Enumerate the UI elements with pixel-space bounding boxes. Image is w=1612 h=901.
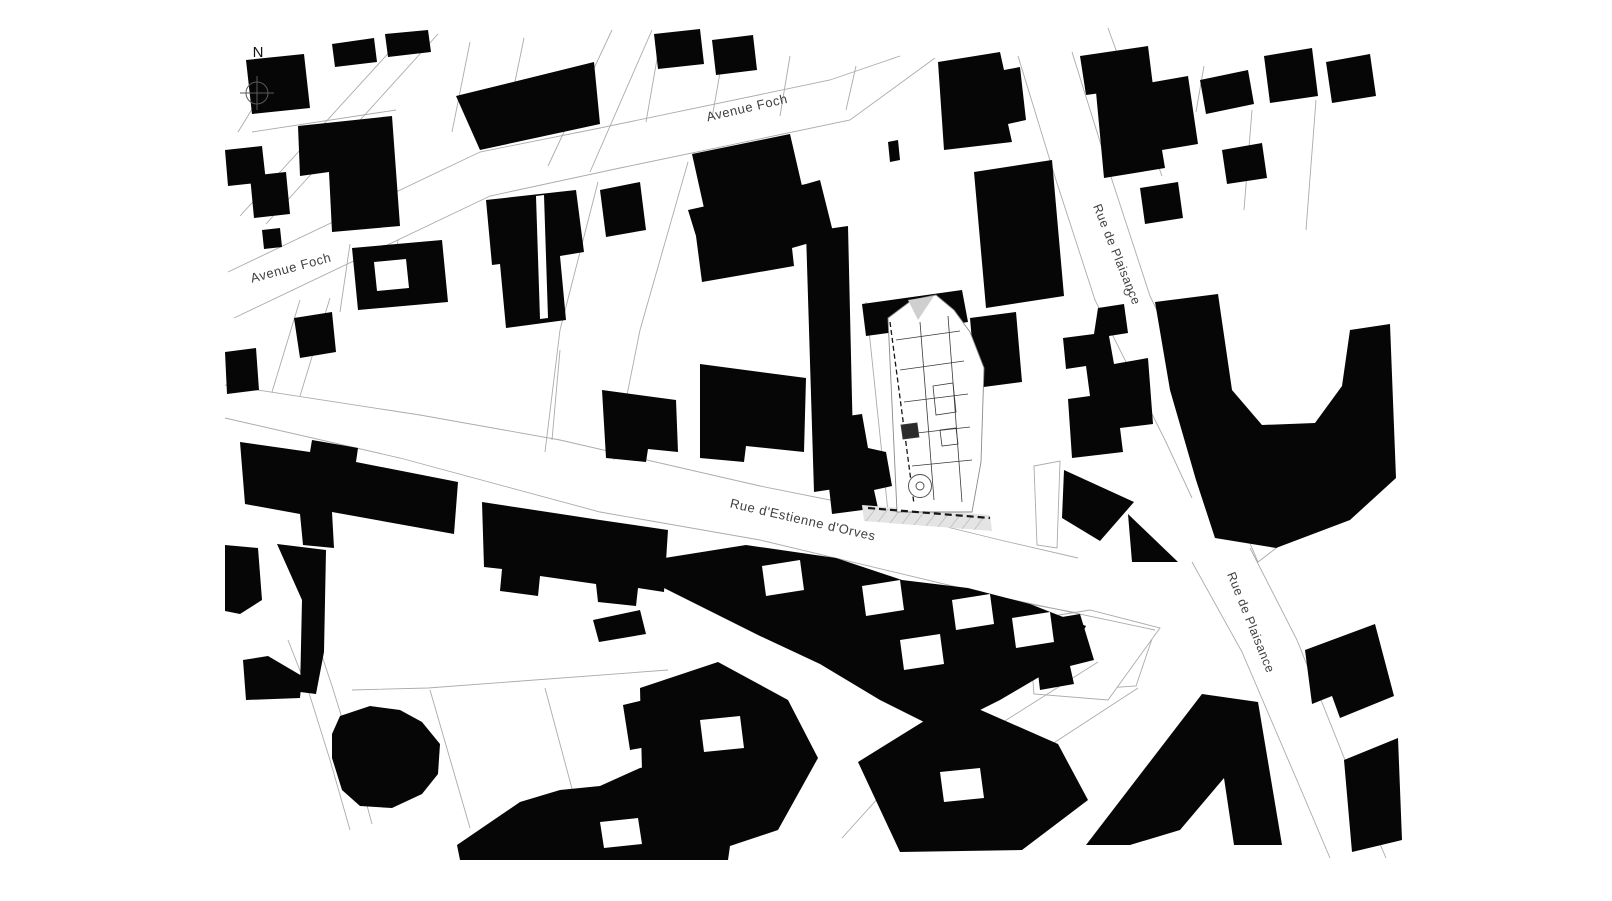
- building-courtyard: [862, 580, 904, 616]
- building-courtyard: [600, 818, 642, 848]
- parcel-line: [272, 300, 300, 392]
- building-footprint: [593, 610, 646, 642]
- building-footprint: [974, 160, 1064, 308]
- site-plan-page: Avenue FochAvenue FochRue de PlaisanceRu…: [0, 0, 1612, 901]
- building-footprint: [938, 52, 1026, 150]
- parcel-line: [545, 688, 575, 800]
- building-footprint: [1344, 738, 1402, 852]
- building-footprint: [1086, 694, 1282, 845]
- building-footprint: [1305, 624, 1394, 718]
- building-footprint: [486, 190, 584, 328]
- building-footprint: [385, 30, 431, 57]
- site-plan-element: [901, 423, 919, 439]
- building-footprint: [225, 146, 266, 186]
- building-footprint: [298, 116, 400, 232]
- building-footprint: [482, 502, 668, 606]
- building-footprint: [1326, 54, 1376, 103]
- buildings-layer: [225, 29, 1402, 860]
- street-label: Rue de Plaisance: [1090, 202, 1143, 307]
- site-plan-svg: Avenue FochAvenue FochRue de PlaisanceRu…: [0, 0, 1612, 901]
- street-label: Avenue Foch: [249, 250, 333, 286]
- building-footprint: [457, 762, 732, 860]
- parcel-line: [1306, 100, 1316, 230]
- building-footprint: [243, 656, 302, 700]
- building-footprint: [1222, 143, 1267, 184]
- building-courtyard: [374, 259, 409, 291]
- building-courtyard: [700, 716, 744, 752]
- building-courtyard: [1012, 612, 1054, 648]
- site-stair-circle: [916, 482, 924, 490]
- parcel-line: [352, 670, 668, 690]
- building-footprint: [1140, 182, 1183, 224]
- building-footprint: [225, 348, 259, 394]
- building-footprint: [332, 706, 440, 808]
- building-footprint: [1096, 76, 1198, 178]
- building-footprint: [1062, 470, 1134, 541]
- building-courtyard: [940, 768, 984, 802]
- parcel-line: [340, 244, 350, 312]
- building-footprint: [888, 140, 900, 162]
- building-footprint: [623, 692, 684, 750]
- building-footprint: [246, 54, 310, 114]
- building-footprint: [712, 35, 757, 75]
- building-footprint: [1063, 304, 1153, 458]
- building-courtyard: [1237, 302, 1338, 410]
- building-courtyard: [952, 594, 994, 630]
- building-footprint: [816, 414, 892, 514]
- street-label: Avenue Foch: [705, 91, 789, 124]
- building-footprint: [240, 440, 458, 548]
- building-footprint: [225, 545, 262, 614]
- building-courtyard: [762, 560, 804, 596]
- parcel-block: [1034, 461, 1060, 548]
- building-footprint: [700, 364, 806, 462]
- parcel-line: [590, 30, 652, 172]
- site-outline: [888, 295, 984, 512]
- building-footprint: [1128, 514, 1178, 562]
- building-footprint: [600, 182, 646, 237]
- building-footprint: [654, 29, 704, 69]
- building-footprint: [332, 38, 377, 67]
- building-footprint: [602, 390, 678, 462]
- building-footprint: [1264, 48, 1318, 103]
- building-courtyard: [900, 634, 944, 670]
- building-footprint: [1200, 70, 1254, 114]
- building-footprint: [262, 228, 282, 249]
- north-label: N: [253, 44, 264, 61]
- building-footprint: [456, 62, 600, 150]
- building-footprint: [294, 312, 336, 358]
